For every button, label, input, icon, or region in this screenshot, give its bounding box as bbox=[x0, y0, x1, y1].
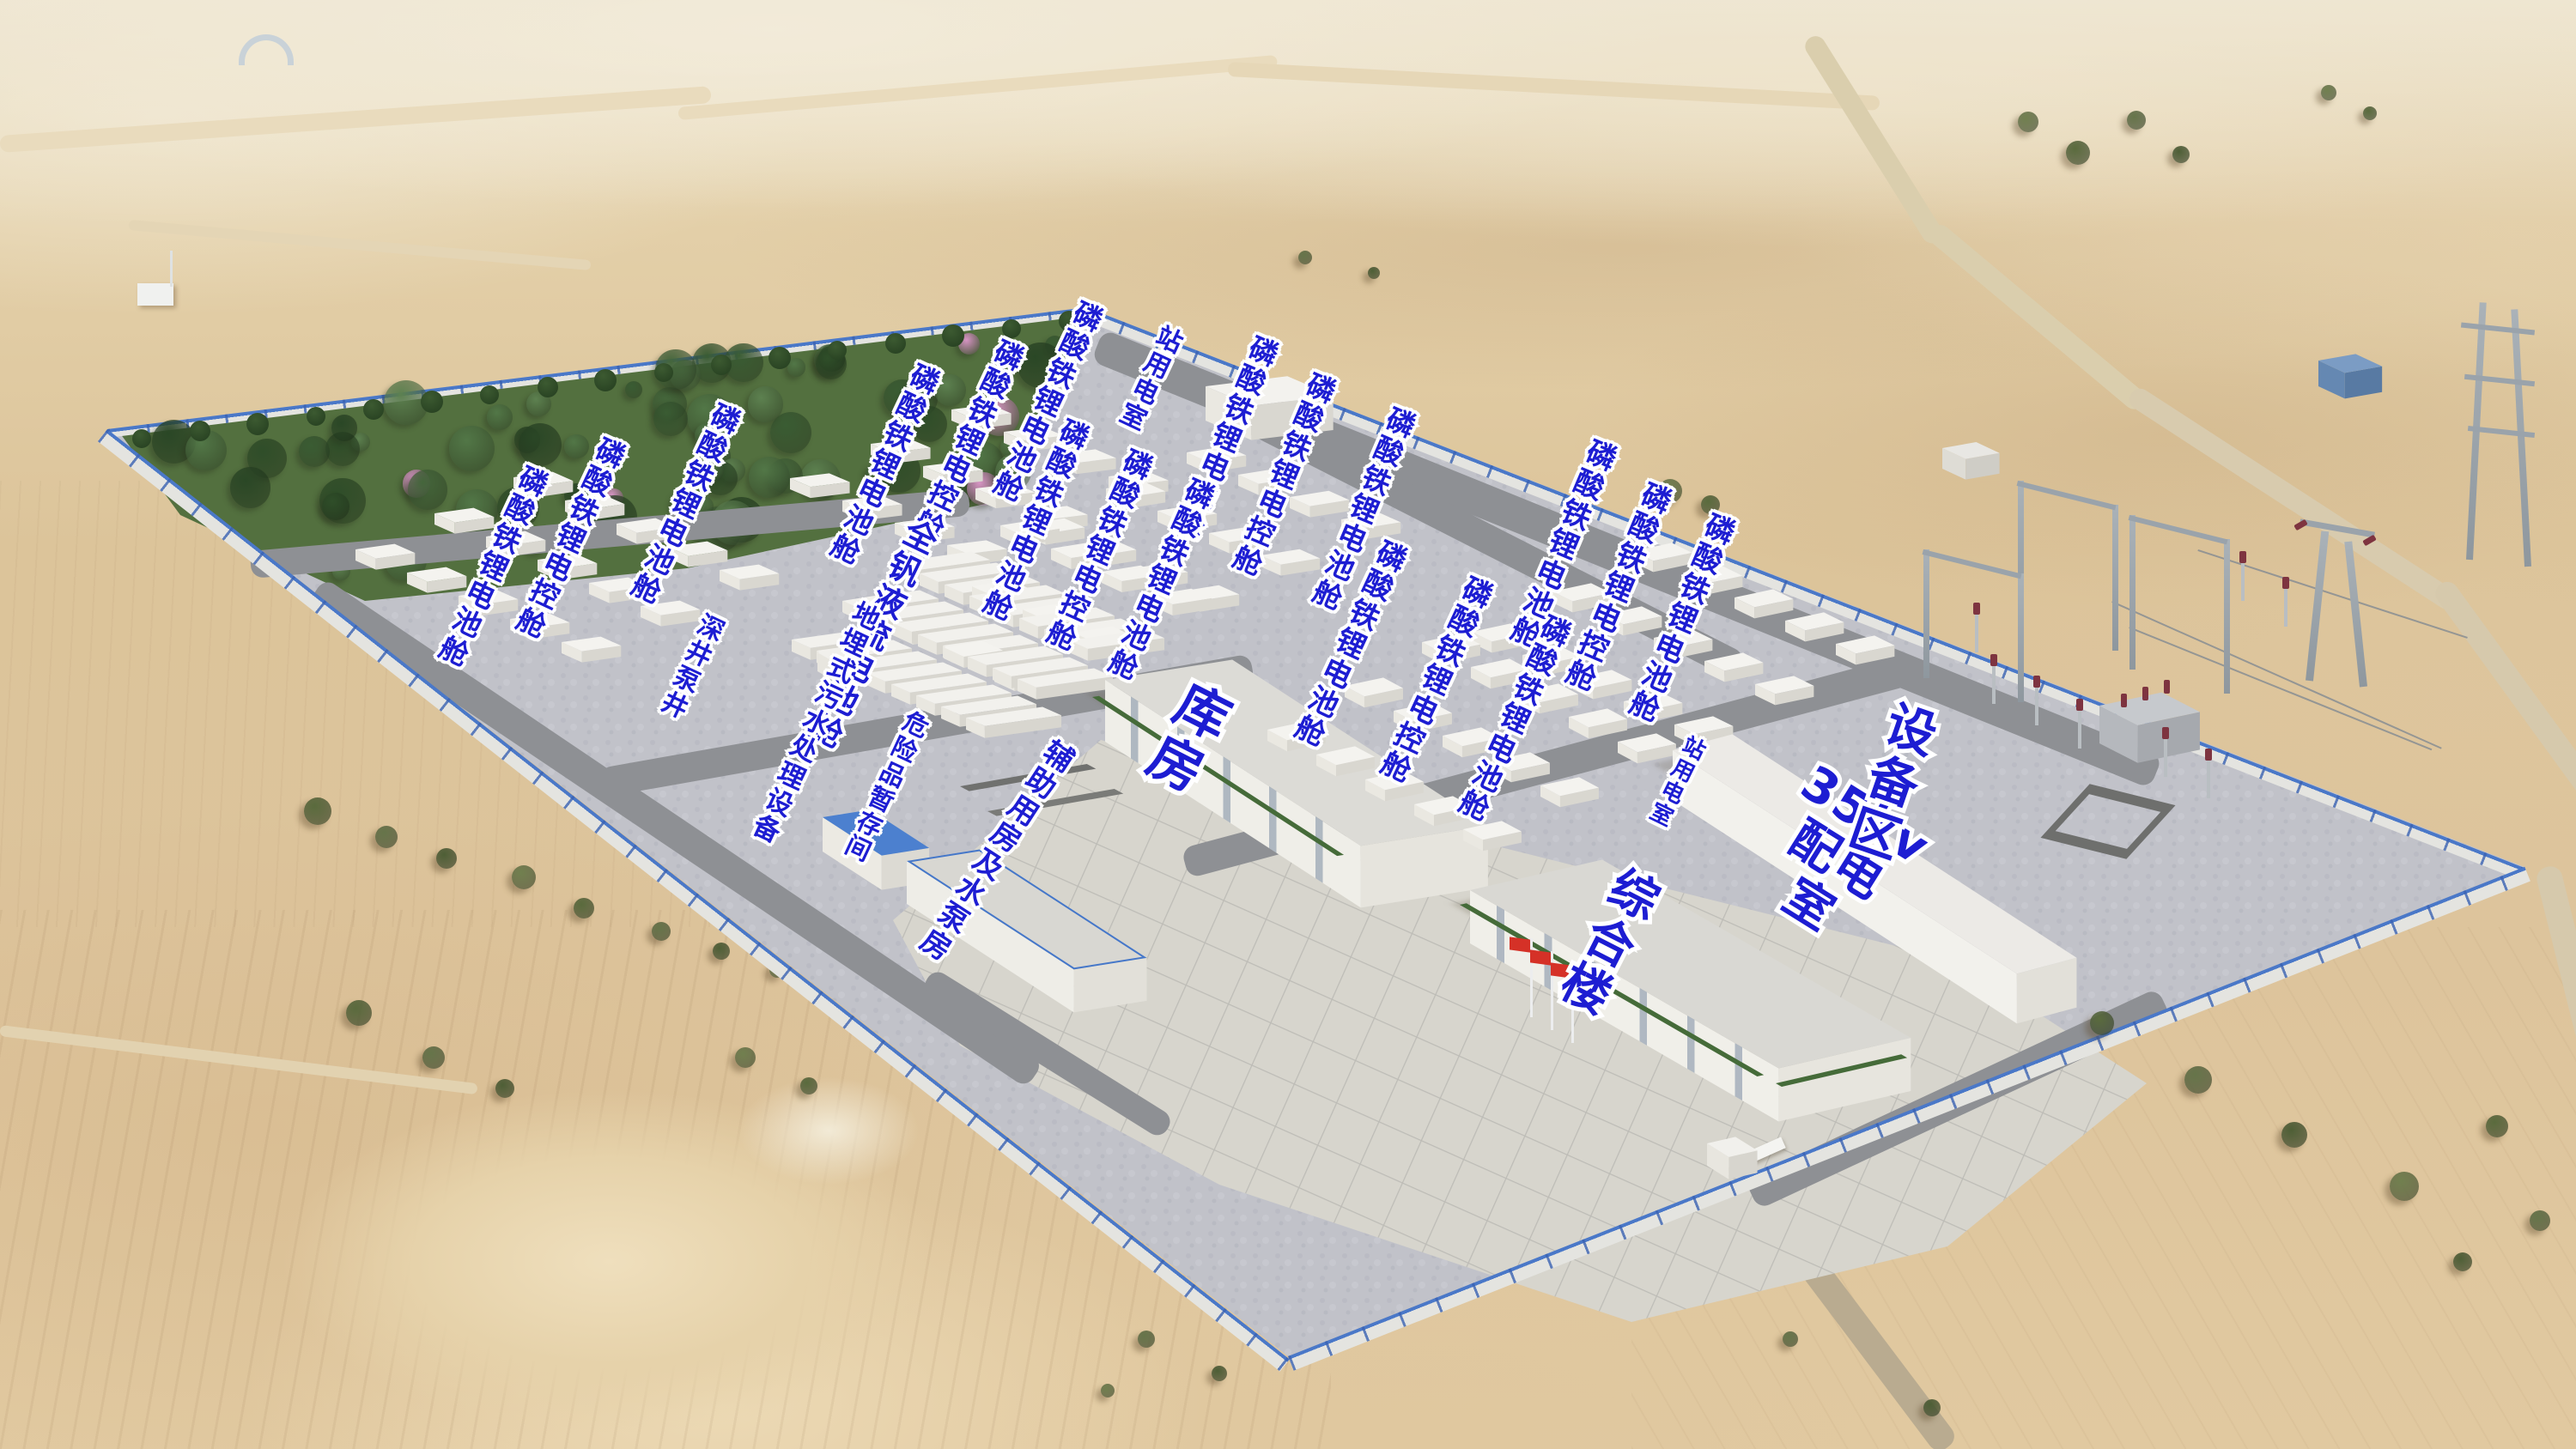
desert-tree bbox=[1138, 1331, 1155, 1348]
desert-tree bbox=[713, 943, 730, 960]
red-flag bbox=[1530, 949, 1551, 965]
insulator bbox=[2239, 551, 2246, 563]
desert-tree bbox=[346, 1000, 372, 1026]
garden-tree bbox=[449, 426, 495, 471]
desert-tree bbox=[2184, 1066, 2212, 1094]
insulator-post bbox=[2164, 737, 2167, 777]
insulator-post bbox=[1992, 664, 1996, 704]
substation-gantry bbox=[2129, 515, 2136, 670]
pine-tree bbox=[538, 377, 558, 397]
desert-tree bbox=[2090, 1011, 2114, 1035]
desert-tree bbox=[2453, 1252, 2472, 1271]
desert-tree bbox=[495, 1079, 514, 1098]
garden-tree bbox=[748, 386, 784, 422]
desert-tree bbox=[512, 865, 536, 889]
garden-tree bbox=[408, 470, 448, 510]
desert-tree bbox=[1368, 267, 1380, 279]
insulator bbox=[2076, 699, 2083, 711]
desert-tree bbox=[1212, 1366, 1227, 1381]
transformer-bushing bbox=[2121, 694, 2127, 707]
desert-tree bbox=[2363, 106, 2377, 120]
insulator bbox=[1990, 654, 1997, 666]
insulator bbox=[1973, 603, 1980, 615]
garden-tree bbox=[299, 436, 330, 467]
desert-tree bbox=[1101, 1384, 1115, 1397]
desert-tree bbox=[1923, 1399, 1941, 1416]
substation-gantry bbox=[2112, 505, 2118, 651]
insulator-post bbox=[2207, 759, 2210, 798]
pine-tree bbox=[594, 369, 617, 391]
garden-tree bbox=[564, 434, 589, 459]
pine-tree bbox=[654, 363, 673, 382]
desert-tree bbox=[422, 1046, 445, 1069]
desert-tree bbox=[2321, 85, 2336, 100]
desert-tree bbox=[735, 1047, 756, 1068]
insulator-post bbox=[2241, 561, 2245, 601]
insulator-post bbox=[2284, 587, 2287, 627]
desert-tree bbox=[2127, 111, 2146, 130]
pine-tree bbox=[307, 407, 325, 426]
substation-gantry bbox=[2018, 573, 2024, 702]
desert-tree bbox=[1298, 251, 1312, 264]
desert-tree bbox=[2018, 112, 2038, 132]
garden-tree bbox=[322, 493, 349, 520]
desert-tree bbox=[375, 826, 398, 848]
insulator bbox=[2162, 727, 2169, 739]
desert-tree bbox=[436, 848, 457, 869]
desert-tree bbox=[574, 898, 594, 919]
transformer-bushing bbox=[2142, 687, 2148, 700]
pine-tree bbox=[769, 347, 791, 369]
insulator-post bbox=[2078, 709, 2081, 749]
substation-gantry bbox=[2224, 539, 2230, 694]
insulator-post bbox=[1975, 613, 1978, 652]
aerial-facility-render: 磷酸铁锂电池舱磷酸铁锂电控舱磷酸铁锂电池舱磷酸铁锂电池舱磷酸铁锂电控舱磷酸铁锂电… bbox=[0, 0, 2576, 1449]
pine-tree bbox=[421, 391, 443, 413]
desert-tree bbox=[2172, 146, 2190, 163]
desert-tree bbox=[2390, 1172, 2419, 1201]
pine-tree bbox=[885, 333, 906, 354]
desert-tree bbox=[2281, 1122, 2307, 1148]
garden-tree bbox=[749, 457, 790, 498]
pine-tree bbox=[190, 421, 210, 441]
desert-tree bbox=[2486, 1115, 2508, 1137]
desert-tree bbox=[2066, 141, 2090, 165]
insulator bbox=[2282, 577, 2289, 589]
pine-tree bbox=[132, 429, 151, 448]
desert-tree bbox=[1783, 1331, 1798, 1347]
garden-tree bbox=[519, 423, 562, 466]
transformer-bushing bbox=[2164, 680, 2170, 694]
red-flag bbox=[1510, 937, 1530, 952]
desert-tree bbox=[652, 922, 671, 941]
pine-tree bbox=[480, 385, 499, 404]
desert-tree bbox=[304, 797, 331, 825]
desert-tree bbox=[800, 1077, 817, 1094]
insulator bbox=[2033, 676, 2040, 688]
insulator-post bbox=[2035, 686, 2038, 725]
garden-tree bbox=[487, 404, 513, 430]
pine-tree bbox=[246, 413, 269, 435]
desert-tree bbox=[2530, 1210, 2550, 1231]
pine-tree bbox=[363, 399, 384, 420]
pine-tree bbox=[942, 324, 964, 347]
garden-tree bbox=[625, 381, 642, 398]
substation-gantry bbox=[1923, 549, 1929, 678]
insulator bbox=[2205, 749, 2212, 761]
garden-tree bbox=[230, 467, 271, 508]
